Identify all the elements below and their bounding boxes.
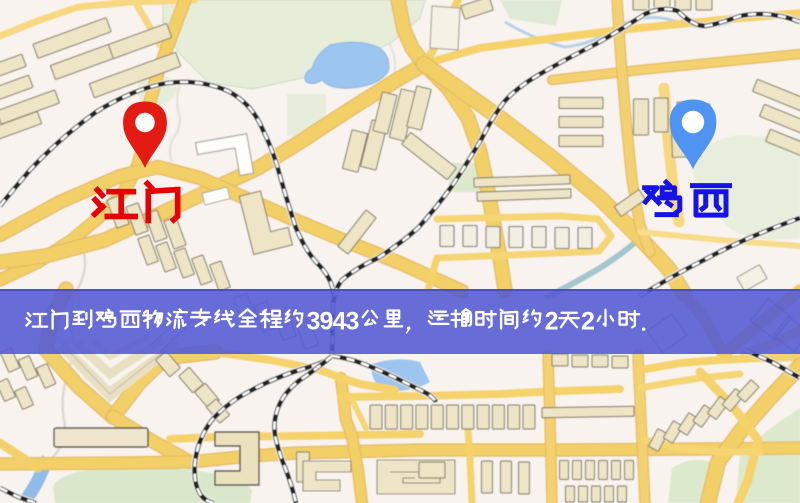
svg-text:3: 3 [346, 307, 360, 335]
svg-text:2: 2 [545, 307, 559, 335]
svg-text:4: 4 [333, 307, 347, 335]
svg-text:9: 9 [320, 307, 334, 335]
svg-text:3: 3 [307, 307, 321, 335]
svg-text:2: 2 [581, 307, 595, 335]
